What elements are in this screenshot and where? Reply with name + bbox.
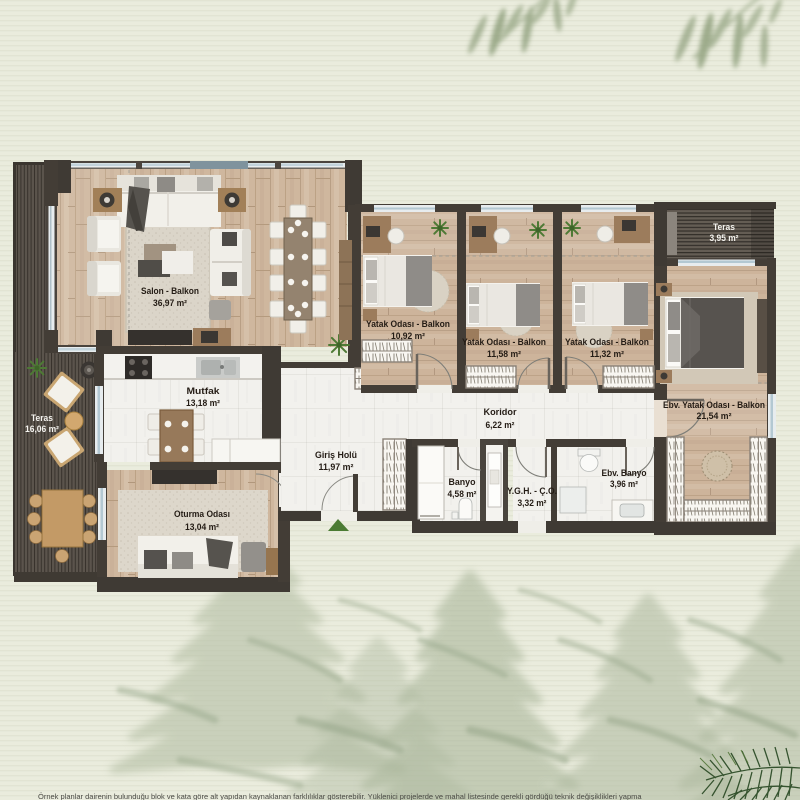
svg-text:6,22 m²: 6,22 m² [486,420,515,430]
svg-text:13,04 m²: 13,04 m² [185,522,219,532]
svg-text:Oturma Odası: Oturma Odası [174,509,230,519]
svg-text:Teras: Teras [713,222,735,232]
svg-text:21,54 m²: 21,54 m² [697,411,732,421]
svg-text:Örnek planlar dairenin bulundu: Örnek planlar dairenin bulunduğu blok ve… [38,792,642,800]
svg-text:36,97 m²: 36,97 m² [153,298,187,308]
svg-text:Yatak Odası - Balkon: Yatak Odası - Balkon [366,319,450,329]
svg-text:10,92 m²: 10,92 m² [391,331,425,341]
svg-text:3,95 m²: 3,95 m² [710,233,739,243]
svg-text:11,58 m²: 11,58 m² [487,349,521,359]
svg-text:11,32 m²: 11,32 m² [590,349,624,359]
svg-text:Teras: Teras [31,413,53,423]
svg-text:Banyo: Banyo [449,477,476,487]
svg-text:Yatak Odası - Balkon: Yatak Odası - Balkon [462,337,546,347]
svg-text:Ebv. Banyo: Ebv. Banyo [602,468,647,478]
svg-text:Ebv. Yatak Odası - Balkon: Ebv. Yatak Odası - Balkon [663,400,765,410]
svg-text:11,97 m²: 11,97 m² [319,462,354,472]
svg-text:16,06 m²: 16,06 m² [25,424,59,434]
svg-text:Koridor: Koridor [484,407,518,417]
svg-text:Mutfak: Mutfak [187,386,221,396]
svg-text:Yatak Odası - Balkon: Yatak Odası - Balkon [565,337,649,347]
svg-text:Giriş Holü: Giriş Holü [315,450,357,460]
svg-text:4,58 m²: 4,58 m² [448,489,477,499]
svg-text:Salon - Balkon: Salon - Balkon [141,286,199,296]
svg-text:Y.G.H. - Ç.O.: Y.G.H. - Ç.O. [507,486,557,496]
svg-text:13,18 m²: 13,18 m² [186,398,220,408]
svg-text:3,32 m²: 3,32 m² [518,498,547,508]
svg-text:3,96 m²: 3,96 m² [610,479,638,489]
